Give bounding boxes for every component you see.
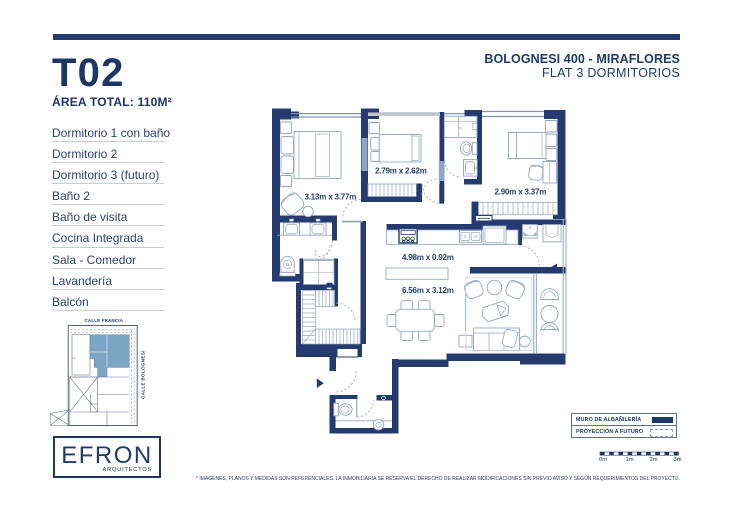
- svg-text:CALLE FRANCIA: CALLE FRANCIA: [85, 318, 124, 323]
- svg-text:2.79m x 2.62m: 2.79m x 2.62m: [375, 167, 427, 176]
- svg-text:3.13m x 3.77m: 3.13m x 3.77m: [305, 192, 357, 201]
- svg-text:CALLE BOLOGNESI: CALLE BOLOGNESI: [141, 350, 146, 399]
- svg-text:4.98m x 0.92m: 4.98m x 0.92m: [402, 253, 454, 262]
- svg-text:6.56m x 3.12m: 6.56m x 3.12m: [402, 286, 454, 295]
- svg-text:2.90m x 3.37m: 2.90m x 3.37m: [495, 187, 547, 196]
